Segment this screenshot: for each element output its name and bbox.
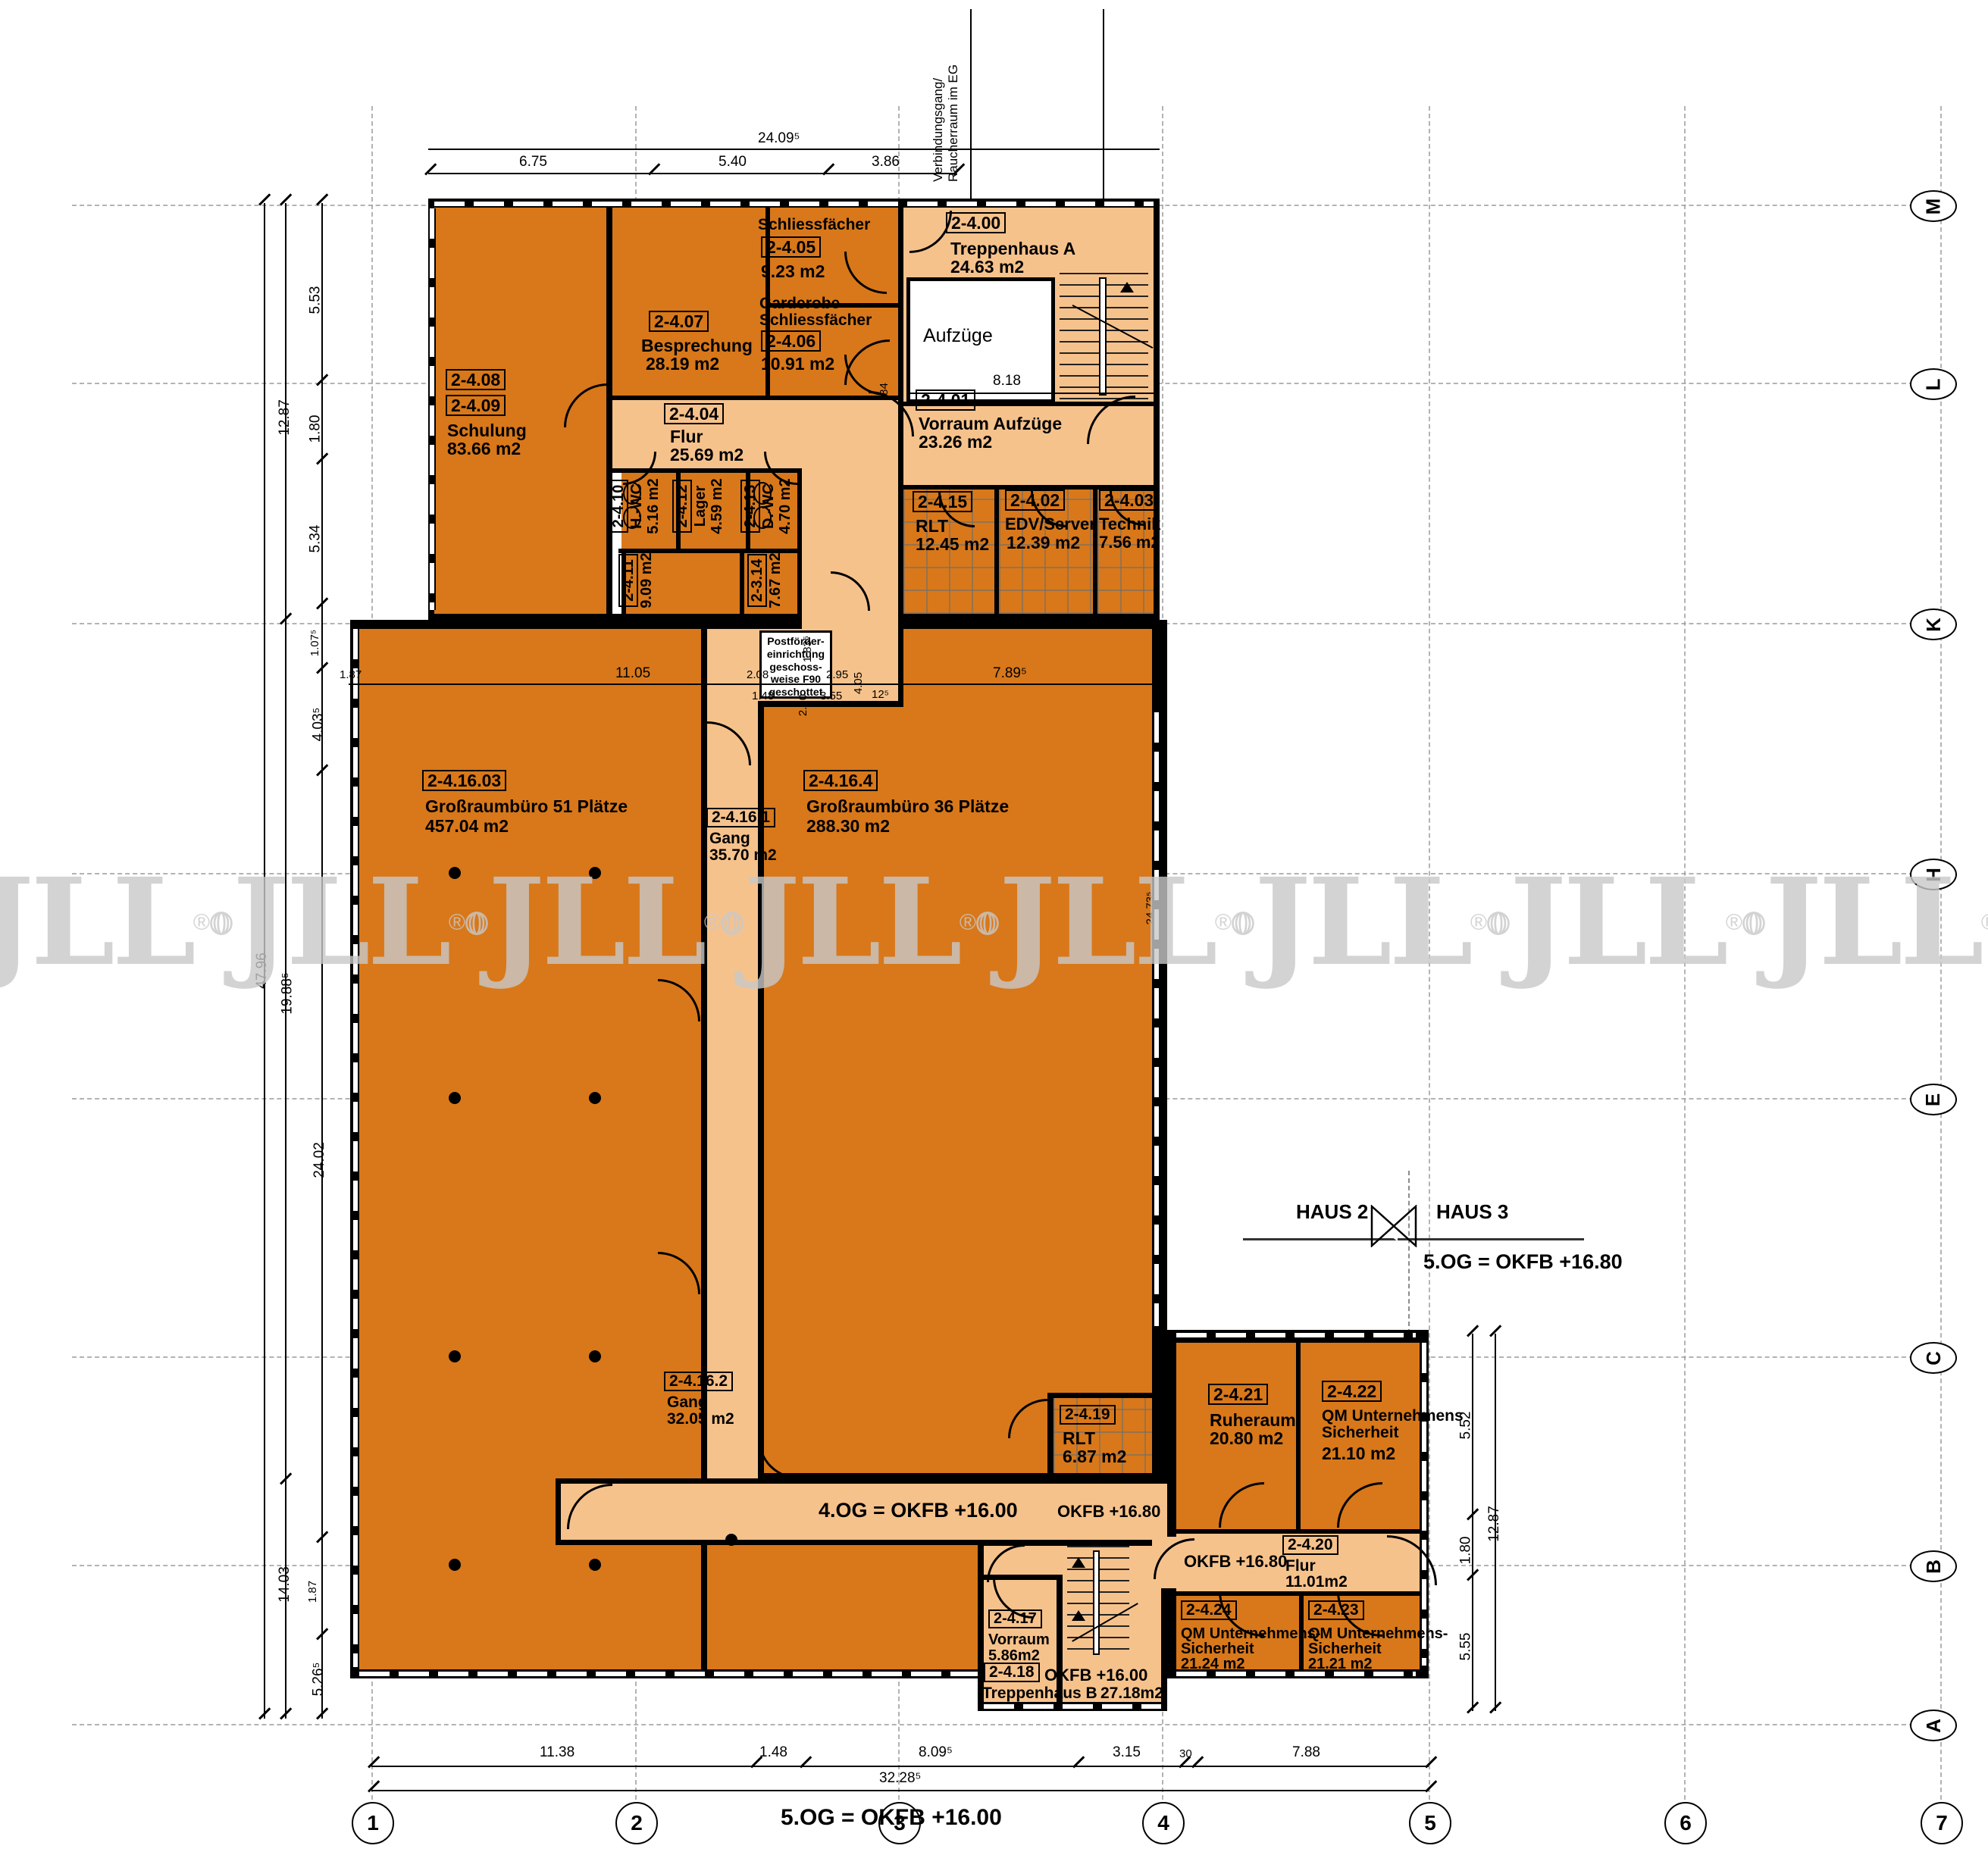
floor-plan-canvas: Postförder- einrichtung geschoss- weise … xyxy=(0,0,1988,1855)
windows-stairB-bottom xyxy=(984,1703,1161,1710)
room-area: 28.19 m2 xyxy=(646,355,719,373)
room-number: 2-4.00 xyxy=(946,212,1006,233)
room-number: 2-4.18 xyxy=(984,1663,1040,1682)
grid-bubble-1: 1 xyxy=(352,1802,394,1844)
jll-globe-icon xyxy=(1232,865,1254,982)
room-area: 457.04 m2 xyxy=(425,817,509,835)
wall-corridor-cap xyxy=(556,1478,561,1545)
grid-bubble-M: M xyxy=(1910,190,1957,222)
room-name: QM Unternehmens- xyxy=(1308,1626,1448,1642)
jll-watermark-reg: ® xyxy=(1215,910,1232,936)
dim-inner: 2.20 xyxy=(797,694,809,716)
grid-number: 6 xyxy=(1680,1811,1692,1835)
jll-watermark-text: JLL xyxy=(1510,863,1726,983)
windows-annex-top xyxy=(1176,1331,1416,1339)
column-dot xyxy=(589,1092,601,1104)
jll-watermark-unit: JLL® xyxy=(0,863,210,983)
dim-right: 5.55 xyxy=(1457,1633,1474,1661)
dim-left: 5.26⁵ xyxy=(310,1663,327,1697)
room-number: 2-4.19 xyxy=(1060,1405,1116,1425)
room-label-413: 2-4.13 D.-WC 4.70 m2 xyxy=(740,465,794,548)
dim-left: 5.53 xyxy=(307,286,324,314)
column-dot xyxy=(589,1559,601,1571)
room-name: Gang xyxy=(709,831,750,847)
jll-watermark-reg: ® xyxy=(193,910,210,936)
room-area: 24.63 m2 xyxy=(950,258,1024,276)
room-name: Ruheraum xyxy=(1210,1411,1296,1429)
room-name: Großraumbüro 36 Plätze xyxy=(806,797,1009,815)
room-number: 2-4.21 xyxy=(1208,1384,1268,1405)
room-number: 2-4.16.2 xyxy=(664,1372,733,1391)
grid-number: 1 xyxy=(367,1811,379,1835)
dim-inner: 11.05 xyxy=(615,665,650,682)
room-area: 20.80 m2 xyxy=(1210,1429,1283,1447)
grid-bubble-B: B xyxy=(1910,1550,1957,1582)
room-area: 288.30 m2 xyxy=(806,817,890,835)
room-area: 10.91 m2 xyxy=(761,355,834,373)
dim-line xyxy=(371,1790,1429,1791)
grid-number: 7 xyxy=(1936,1811,1948,1835)
jll-globe-icon xyxy=(1487,865,1510,982)
room-name: RLT xyxy=(1063,1429,1095,1447)
grid-letter: K xyxy=(1922,618,1946,632)
dim-top-total: 24.09⁵ xyxy=(758,130,800,147)
room-area: 21.21 m2 xyxy=(1308,1656,1373,1672)
grid-bubble-2: 2 xyxy=(615,1802,658,1844)
dim-bottom: 7.88 xyxy=(1292,1744,1320,1761)
grid-letter: H xyxy=(1922,868,1946,882)
room-number: 2-4.16.03 xyxy=(422,770,506,791)
wall-o36-bottom xyxy=(764,1473,1152,1478)
haus3-label: HAUS 3 xyxy=(1436,1200,1508,1224)
room-number: 2-4.13 xyxy=(740,480,760,533)
room-label-411: 2-4.11 9.09 m2 xyxy=(618,539,655,622)
dim-inner: 12⁵ xyxy=(872,688,889,701)
windows-main-bottom xyxy=(359,1670,978,1678)
dim-inner: 24.73⁵ xyxy=(1144,892,1157,925)
grid-letter: B xyxy=(1922,1559,1946,1574)
room-number: 2-4.23 xyxy=(1308,1600,1364,1620)
dim-left: 1.87 xyxy=(306,1581,319,1603)
dim-left: 12.87 xyxy=(277,399,293,436)
grid-number: 2 xyxy=(631,1811,643,1835)
room-area: 9.09 m2 xyxy=(638,552,655,608)
room-area: 25.69 m2 xyxy=(670,446,744,464)
room-area: 7.56 m2 xyxy=(1099,533,1160,551)
room-number: 2-4.07 xyxy=(649,311,709,332)
postfoerder-line: einrichtung xyxy=(762,648,830,661)
room-number: 2-4.09 xyxy=(446,395,506,416)
level-4og: 4.OG = OKFB +16.00 xyxy=(819,1499,1018,1522)
dim-bottom: 30 xyxy=(1179,1747,1192,1760)
windows-o36-right xyxy=(1153,712,1160,1326)
jll-watermark-reg: ® xyxy=(1981,910,1988,936)
room-name: Vorraum xyxy=(988,1632,1050,1648)
windows-annex-right xyxy=(1420,1343,1428,1666)
verbindungsgang-line2: Raucherraum im EG xyxy=(946,64,961,182)
column-dot xyxy=(449,867,461,879)
grid-letter: A xyxy=(1922,1719,1946,1733)
room-name: Garderobe xyxy=(759,296,840,312)
wall xyxy=(740,553,744,614)
dim-right: 12.87 xyxy=(1486,1506,1503,1542)
room-grossraum-36-upper xyxy=(903,629,1152,707)
jll-globe-icon xyxy=(210,865,233,982)
dim-tick xyxy=(1425,1756,1437,1768)
room-name: Gang xyxy=(667,1394,708,1411)
room-number: 2-4.02 xyxy=(1005,490,1065,511)
dim-left: 14.03 xyxy=(277,1566,293,1603)
verbindungsgang-line1: Verbindungsgang/ xyxy=(931,78,946,182)
haus2-label: HAUS 2 xyxy=(1296,1200,1368,1224)
dim-bottom: 1.48 xyxy=(759,1744,787,1761)
windows-main-left xyxy=(352,629,359,1667)
room-name: Schliessfächer xyxy=(758,217,870,233)
room-name: Vorraum Aufzüge xyxy=(919,414,1062,433)
dim-top: 6.75 xyxy=(519,154,547,170)
jll-watermark-reg: ® xyxy=(1470,910,1487,936)
grid-bubble-C: C xyxy=(1910,1342,1957,1374)
room-number: 2-4.16.4 xyxy=(803,770,878,791)
room-area: 5.16 m2 xyxy=(645,478,662,533)
stairs-B-arrow-2 xyxy=(1072,1610,1085,1621)
verbindungsgang-callout: Verbindungsgang/ Raucherraum im EG xyxy=(931,152,1113,182)
room-area: 27.18m2 xyxy=(1100,1685,1163,1702)
grid-number: 4 xyxy=(1157,1811,1169,1835)
room-label-314: 2-3.14 7.67 m2 xyxy=(747,539,784,622)
room-area: 5.86m2 xyxy=(988,1648,1040,1664)
grid-bubble-A: A xyxy=(1910,1710,1957,1741)
dim-bottom: 3.15 xyxy=(1113,1744,1141,1761)
dim-inner: 7.89⁵ xyxy=(993,665,1027,682)
room-area: 83.66 m2 xyxy=(447,440,521,458)
room-name: Schulung xyxy=(447,421,527,440)
room-area: 21.24 m2 xyxy=(1181,1656,1245,1672)
room-label-410: 2-4.10 H.-WC 5.16 m2 xyxy=(609,465,662,548)
dim-inner: 4.05 xyxy=(852,672,865,694)
level-5og-bottom: 5.OG = OKFB +16.00 xyxy=(781,1805,1002,1831)
room-number: 2-4.08 xyxy=(446,369,506,390)
room-area: 12.39 m2 xyxy=(1007,533,1080,552)
wall-connector-right xyxy=(898,629,903,701)
column-dot xyxy=(449,1559,461,1571)
room-name: Flur xyxy=(1285,1558,1316,1575)
haus-bowtie-icon xyxy=(1370,1205,1417,1247)
room-name: Großraumbüro 51 Plätze xyxy=(425,797,628,815)
windows-top xyxy=(434,200,1154,208)
dim-top: 3.86 xyxy=(872,154,900,170)
column-dot xyxy=(589,1350,601,1362)
room-number: 2-4.22 xyxy=(1322,1381,1382,1402)
dim-left: 19.88⁵ xyxy=(280,972,296,1014)
wall-rlt419-left xyxy=(1047,1393,1053,1478)
grid-bubble-7: 7 xyxy=(1921,1802,1963,1844)
room-number: 2-4.11 xyxy=(618,554,638,607)
room-name: Sicherheit xyxy=(1322,1425,1399,1441)
stairs-A-rail xyxy=(1099,277,1107,396)
room-number: 2-4.16.1 xyxy=(706,808,775,827)
dim-left: 1.80 xyxy=(307,415,324,443)
room-number: 2-4.10 xyxy=(609,480,628,533)
room-number: 2-4.06 xyxy=(761,330,821,352)
room-number: 2-4.15 xyxy=(913,491,972,512)
grid-number: 5 xyxy=(1424,1811,1436,1835)
jll-watermark-text: JLL xyxy=(1254,863,1470,983)
room-name-aufzuege: Aufzüge xyxy=(923,326,993,346)
room-area: 4.59 m2 xyxy=(709,478,725,533)
wall-annex-2 xyxy=(1167,1529,1429,1534)
dim-line xyxy=(428,149,1160,150)
grid-bubble-E: E xyxy=(1910,1084,1957,1115)
dim-tick xyxy=(1425,1780,1437,1792)
room-number: 2-4.05 xyxy=(761,236,821,258)
gridline-5 xyxy=(1429,106,1430,1800)
grid-letter: E xyxy=(1922,1093,1946,1106)
grid-bubble-6: 6 xyxy=(1664,1802,1707,1844)
room-number: 2-3.14 xyxy=(747,554,767,608)
dim-left: 5.34 xyxy=(307,525,324,553)
windows-topblock-left xyxy=(428,208,436,610)
grid-letter: M xyxy=(1921,198,1945,214)
column-dot xyxy=(449,1350,461,1362)
dim-inner: 2.95 xyxy=(826,668,848,681)
wall-corridor-bottom xyxy=(561,1540,978,1545)
room-name: Schliessfächer xyxy=(759,312,872,329)
room-name: Sicherheit xyxy=(1308,1641,1382,1657)
dim-left: 1.07⁵ xyxy=(308,630,321,656)
wall-annex-1 xyxy=(1296,1343,1301,1529)
okfb-label-flur420: OKFB +16.80 xyxy=(1184,1552,1287,1572)
room-area: 32.05 m2 xyxy=(667,1411,734,1428)
wall-annex-3 xyxy=(1167,1591,1429,1596)
dim-line xyxy=(371,1766,1429,1767)
level-5og-haus: 5.OG = OKFB +16.80 xyxy=(1423,1250,1623,1274)
dim-line xyxy=(349,684,1156,685)
room-number: 2-4.04 xyxy=(664,403,724,424)
dim-inner: 2.08 xyxy=(747,668,769,681)
okfb-label-corridor: OKFB +16.80 xyxy=(1057,1502,1160,1522)
room-name: Besprechung xyxy=(641,336,753,355)
jll-watermark-unit: JLL® xyxy=(1487,863,1742,983)
room-number: 2-4.12 xyxy=(672,480,692,533)
room-area: 7.67 m2 xyxy=(767,552,784,608)
grid-bubble-K: K xyxy=(1910,608,1957,640)
dim-line xyxy=(758,705,898,706)
gridline-7 xyxy=(1940,106,1942,1800)
haus-boundary-line xyxy=(1408,1171,1410,1334)
grid-bubble-5: 5 xyxy=(1409,1802,1451,1844)
column-dot xyxy=(449,1092,461,1104)
grid-letter: L xyxy=(1921,378,1945,390)
room-area: 9.23 m2 xyxy=(761,262,825,280)
dim-inner: 8.18 xyxy=(993,373,1021,389)
dim-right: 1.80 xyxy=(1457,1537,1474,1565)
room-name: Treppenhaus B xyxy=(982,1685,1097,1702)
wall xyxy=(797,473,802,614)
grid-bubble-4: 4 xyxy=(1142,1802,1185,1844)
wall xyxy=(612,396,898,400)
dim-top: 5.40 xyxy=(718,154,747,170)
room-area: 23.26 m2 xyxy=(919,433,992,451)
room-area: 35.70 m2 xyxy=(709,847,777,864)
dim-left: 4.03⁵ xyxy=(310,708,327,742)
room-name: QM Unternehmens- xyxy=(1181,1626,1320,1642)
jll-watermark-text: JLL xyxy=(0,863,193,983)
room-name: Treppenhaus A xyxy=(950,239,1075,258)
stairs-A-arrow xyxy=(1120,282,1134,292)
room-area: 12.45 m2 xyxy=(916,535,989,553)
room-name: QM Unternehmens xyxy=(1322,1408,1464,1425)
room-name: H.-WC xyxy=(628,483,645,529)
column-dot xyxy=(725,1534,737,1546)
room-name: RLT xyxy=(916,517,948,535)
room-area: 21.10 m2 xyxy=(1322,1444,1395,1462)
dim-inner: 1.48 xyxy=(752,690,774,702)
room-name: EDV/Server xyxy=(1005,515,1096,533)
dim-left: 47.96 xyxy=(254,953,271,989)
room-grossraum-51-lower xyxy=(707,1545,978,1669)
wall-rlt419-top xyxy=(1047,1393,1154,1398)
room-area: 4.70 m2 xyxy=(777,478,794,533)
postfoerder-line: Postförder- xyxy=(762,635,830,648)
room-label-412: 2-4.12 Lager 4.59 m2 xyxy=(672,465,725,548)
gridline-A xyxy=(72,1724,1936,1725)
room-number: 2-4.01 xyxy=(916,389,975,411)
dim-inner: 1.87 xyxy=(340,668,362,681)
jll-globe-icon xyxy=(1742,865,1765,982)
dim-bottom-total: 32.28⁵ xyxy=(879,1770,921,1787)
room-name: Lager xyxy=(692,486,709,527)
grid-letter: C xyxy=(1922,1351,1946,1365)
room-name: Flur xyxy=(670,427,703,446)
postfoerder-box: Postförder- einrichtung geschoss- weise … xyxy=(759,630,832,699)
dim-bottom: 8.09⁵ xyxy=(919,1744,953,1761)
room-number: 2-4.17 xyxy=(988,1609,1042,1628)
room-number: 2-4.03 xyxy=(1099,490,1159,511)
room-name: D.-WC xyxy=(760,483,777,529)
room-name: Sicherheit xyxy=(1181,1641,1254,1657)
gridline-6 xyxy=(1684,106,1686,1800)
okfb-label-treppeB: OKFB +16.00 xyxy=(1044,1666,1147,1685)
wall-corridor-top xyxy=(561,1478,1167,1484)
dim-inner: 1.83⁵ xyxy=(801,636,814,662)
dim-bottom: 11.38 xyxy=(540,1744,574,1761)
dim-left: 24.02 xyxy=(312,1142,328,1178)
room-name: Technik xyxy=(1099,515,1161,533)
room-area: 11.01m2 xyxy=(1285,1574,1348,1591)
stairs-B-arrow-1 xyxy=(1072,1557,1085,1568)
dim-inner: 3.55 xyxy=(820,690,842,702)
stairs-B-rail xyxy=(1093,1550,1100,1655)
wall-gang-left xyxy=(701,629,707,1484)
room-area: 6.87 m2 xyxy=(1063,1447,1126,1466)
jll-watermark-unit: JLL® xyxy=(1232,863,1487,983)
postfoerder-line: geschoss- xyxy=(762,661,830,674)
room-number: 2-4.20 xyxy=(1282,1535,1338,1555)
jll-watermark-reg: ® xyxy=(1726,910,1742,936)
grid-bubble-H: H xyxy=(1910,859,1957,890)
dim-line xyxy=(428,173,956,174)
corridor-gang-1 xyxy=(707,629,758,1540)
room-number: 2-4.24 xyxy=(1181,1600,1237,1620)
wall xyxy=(994,490,999,614)
grid-bubble-L: L xyxy=(1910,368,1957,400)
wall xyxy=(1093,490,1097,614)
column-dot xyxy=(589,867,601,879)
